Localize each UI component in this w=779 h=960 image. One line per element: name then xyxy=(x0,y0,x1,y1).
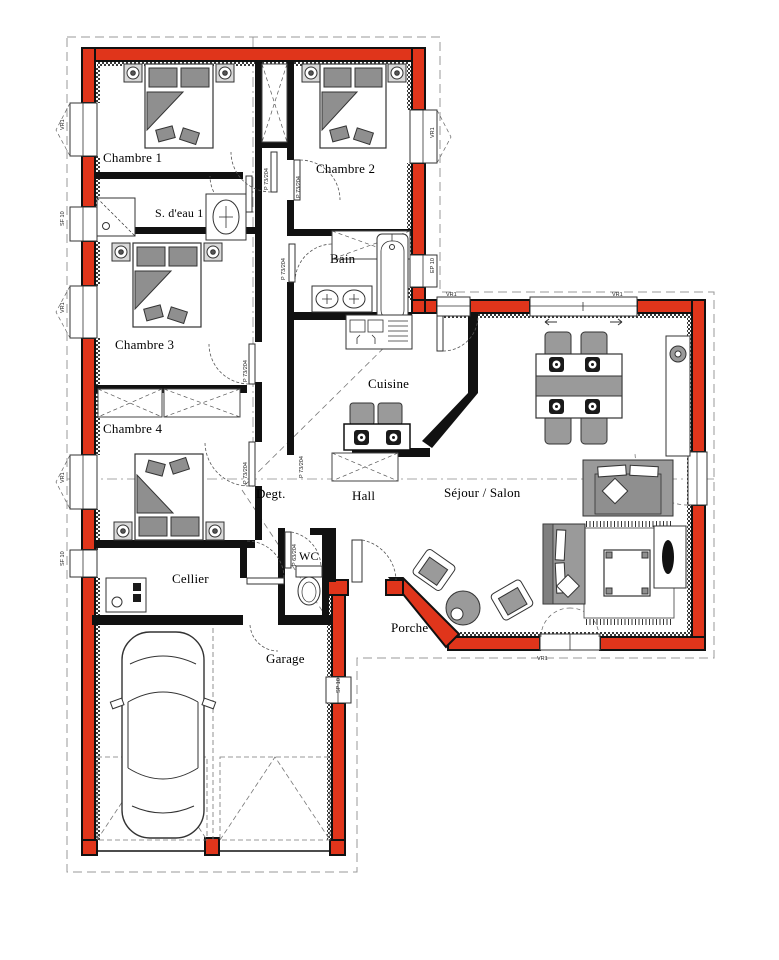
door-leaf-entry xyxy=(352,540,362,582)
bed-chambre2 xyxy=(302,64,406,148)
bar-chair-right xyxy=(378,403,402,425)
window-sdeau xyxy=(70,207,97,241)
bay-window-arrows xyxy=(545,319,622,325)
coffee-table xyxy=(604,550,650,596)
label-vr1-left1: VR1 xyxy=(60,119,66,130)
window-chambre1 xyxy=(70,103,97,156)
bed-chambre1 xyxy=(124,64,234,148)
label-door-ch4: P 73/204 xyxy=(243,462,249,484)
room-label-chambre-3: Chambre 3 xyxy=(115,337,174,353)
wall-top xyxy=(82,48,425,61)
door-leaf-chambre3 xyxy=(249,344,255,384)
room-label-bain: Bain xyxy=(330,251,355,267)
label-vr1-left3: VR1 xyxy=(60,472,66,483)
window-cellier xyxy=(70,550,97,577)
label-vr1-top1: VR1 xyxy=(446,292,457,298)
window-chambre4 xyxy=(70,455,97,509)
room-label-garage: Garage xyxy=(266,651,305,667)
door-leaf-sejour-top xyxy=(437,316,443,351)
room-label-porche: Porche xyxy=(391,620,428,636)
door-leaf-sdeau xyxy=(246,176,252,212)
room-label-chambre-2: Chambre 2 xyxy=(316,161,375,177)
label-sp10-garage: SP 10 xyxy=(336,678,342,693)
window-sejour-left xyxy=(437,297,470,316)
label-door-wc: P 63/204 xyxy=(292,544,298,566)
label-sf10-left: SF 10 xyxy=(60,211,66,226)
label-vr1-top2: VR1 xyxy=(612,292,623,298)
room-label-degagement: Degt. xyxy=(256,486,286,502)
armchair-1 xyxy=(411,548,456,592)
label-door-bain: P 73/204 xyxy=(281,258,287,280)
round-side-table xyxy=(446,591,480,625)
floor-plan: VR1 SF 10 VR1 VR1 SF 10 VR1 EP 10 VR1 VR… xyxy=(0,0,779,960)
room-label-chambre-1: Chambre 1 xyxy=(103,150,162,166)
sofa-large xyxy=(583,460,673,516)
door-leaf-chambre4 xyxy=(249,442,255,486)
door-leaf-bain xyxy=(289,244,295,282)
bed-chambre3 xyxy=(112,243,222,327)
door-leaf-chambre1 xyxy=(271,152,277,192)
room-label-sdeau-1: S. d'eau 1 xyxy=(155,206,204,221)
label-door-ch1: P 73/204 xyxy=(264,168,270,190)
tv-stand xyxy=(654,526,686,588)
label-door-ch2: P 73/204 xyxy=(296,176,302,198)
closet-degagement xyxy=(262,64,287,142)
sink-bowl-right xyxy=(368,320,383,332)
room-label-hall: Hall xyxy=(352,488,375,504)
label-vr1-bottom: VR1 xyxy=(537,656,548,662)
label-sf10-cellier: SF 10 xyxy=(60,551,66,566)
car xyxy=(110,632,215,838)
dining-set xyxy=(536,332,622,444)
sideboard xyxy=(666,336,690,456)
room-label-wc: WC xyxy=(299,549,319,564)
closet-chambre3 xyxy=(164,389,240,417)
window-chambre3 xyxy=(70,286,97,338)
door-leaf-cellier xyxy=(247,578,284,584)
label-vr1-right: VR1 xyxy=(430,127,436,138)
label-door-ch3: P 73/204 xyxy=(243,360,249,382)
sink-bowl-left xyxy=(350,320,365,332)
label-vr1-left2: VR1 xyxy=(60,302,66,313)
bed-chambre4 xyxy=(114,454,224,540)
sofa-small xyxy=(543,524,585,604)
bay-window-sejour xyxy=(530,297,637,316)
label-door-hall: P 73/204 xyxy=(299,456,305,478)
room-label-sejour-salon: Séjour / Salon xyxy=(444,485,520,501)
window-sejour-right xyxy=(688,452,707,505)
room-label-cellier: Cellier xyxy=(172,571,209,587)
room-label-chambre-4: Chambre 4 xyxy=(103,421,162,437)
bar-chair-left xyxy=(350,403,374,425)
toilet-tank xyxy=(296,566,322,577)
door-leaf-wc xyxy=(285,532,291,568)
armchair-2 xyxy=(490,579,534,622)
washing-machine xyxy=(106,578,146,612)
floor-plan-drawing: VR1 SF 10 VR1 VR1 SF 10 VR1 EP 10 VR1 VR… xyxy=(0,0,779,960)
room-label-cuisine: Cuisine xyxy=(368,376,409,392)
label-ep10: EP 10 xyxy=(430,258,436,273)
